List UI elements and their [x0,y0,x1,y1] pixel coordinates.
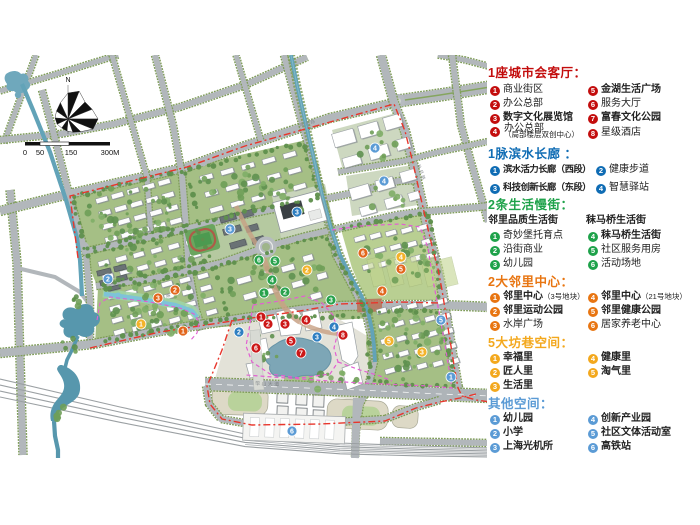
svg-text:4: 4 [270,277,274,284]
svg-text:1: 1 [449,374,453,381]
svg-text:2: 2 [106,276,110,283]
svg-text:1: 1 [181,328,185,335]
svg-text:0: 0 [23,148,27,157]
svg-text:毕 山 大 道: 毕 山 大 道 [255,380,279,388]
svg-text:1: 1 [139,321,143,328]
svg-text:4: 4 [332,324,336,331]
svg-text:7: 7 [299,350,303,357]
svg-text:3: 3 [420,349,424,356]
svg-text:6: 6 [254,345,258,352]
svg-text:3: 3 [283,321,287,328]
svg-text:3: 3 [228,226,232,233]
svg-text:4: 4 [382,178,386,185]
svg-text:3: 3 [156,295,160,302]
svg-text:6: 6 [257,257,261,264]
svg-text:3: 3 [329,297,333,304]
svg-text:5: 5 [273,258,277,265]
svg-text:2: 2 [173,287,177,294]
svg-text:8: 8 [341,332,345,339]
svg-text:1: 1 [259,314,263,321]
svg-text:50: 50 [36,148,44,157]
svg-text:5: 5 [399,266,403,273]
svg-text:4: 4 [304,317,308,324]
svg-text:5: 5 [387,338,391,345]
svg-text:N: N [65,77,70,84]
svg-text:3: 3 [295,209,299,216]
svg-text:6: 6 [290,428,294,435]
svg-text:2: 2 [266,321,270,328]
svg-text:5: 5 [439,317,443,324]
svg-text:3: 3 [315,334,319,341]
svg-text:4: 4 [399,254,403,261]
svg-text:2: 2 [237,329,241,336]
svg-text:4: 4 [373,145,377,152]
svg-text:2: 2 [283,289,287,296]
svg-text:2: 2 [305,267,309,274]
svg-text:6: 6 [361,250,365,257]
svg-text:300M: 300M [101,148,120,157]
svg-text:150: 150 [65,148,78,157]
svg-text:1: 1 [262,290,266,297]
svg-text:5: 5 [289,338,293,345]
svg-text:4: 4 [380,288,384,295]
